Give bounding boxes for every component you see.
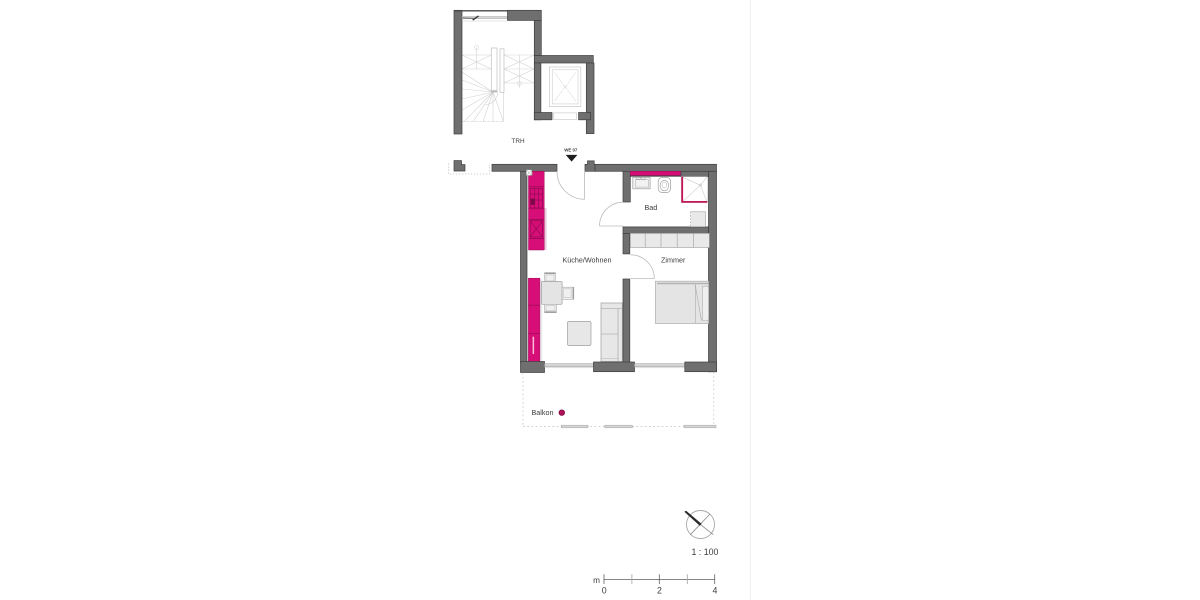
svg-text:Balkon: Balkon	[532, 408, 554, 417]
svg-text:Bad: Bad	[645, 203, 658, 212]
svg-text:0: 0	[602, 586, 607, 596]
svg-text:2: 2	[657, 586, 662, 596]
svg-text:1 : 100: 1 : 100	[692, 547, 719, 557]
svg-text:Zimmer: Zimmer	[661, 255, 686, 264]
svg-text:4: 4	[712, 586, 717, 596]
svg-text:WE 07: WE 07	[564, 148, 578, 153]
svg-text:m: m	[593, 576, 600, 585]
svg-text:TRH: TRH	[511, 138, 525, 145]
svg-text:Küche/Wohnen: Küche/Wohnen	[562, 255, 611, 264]
